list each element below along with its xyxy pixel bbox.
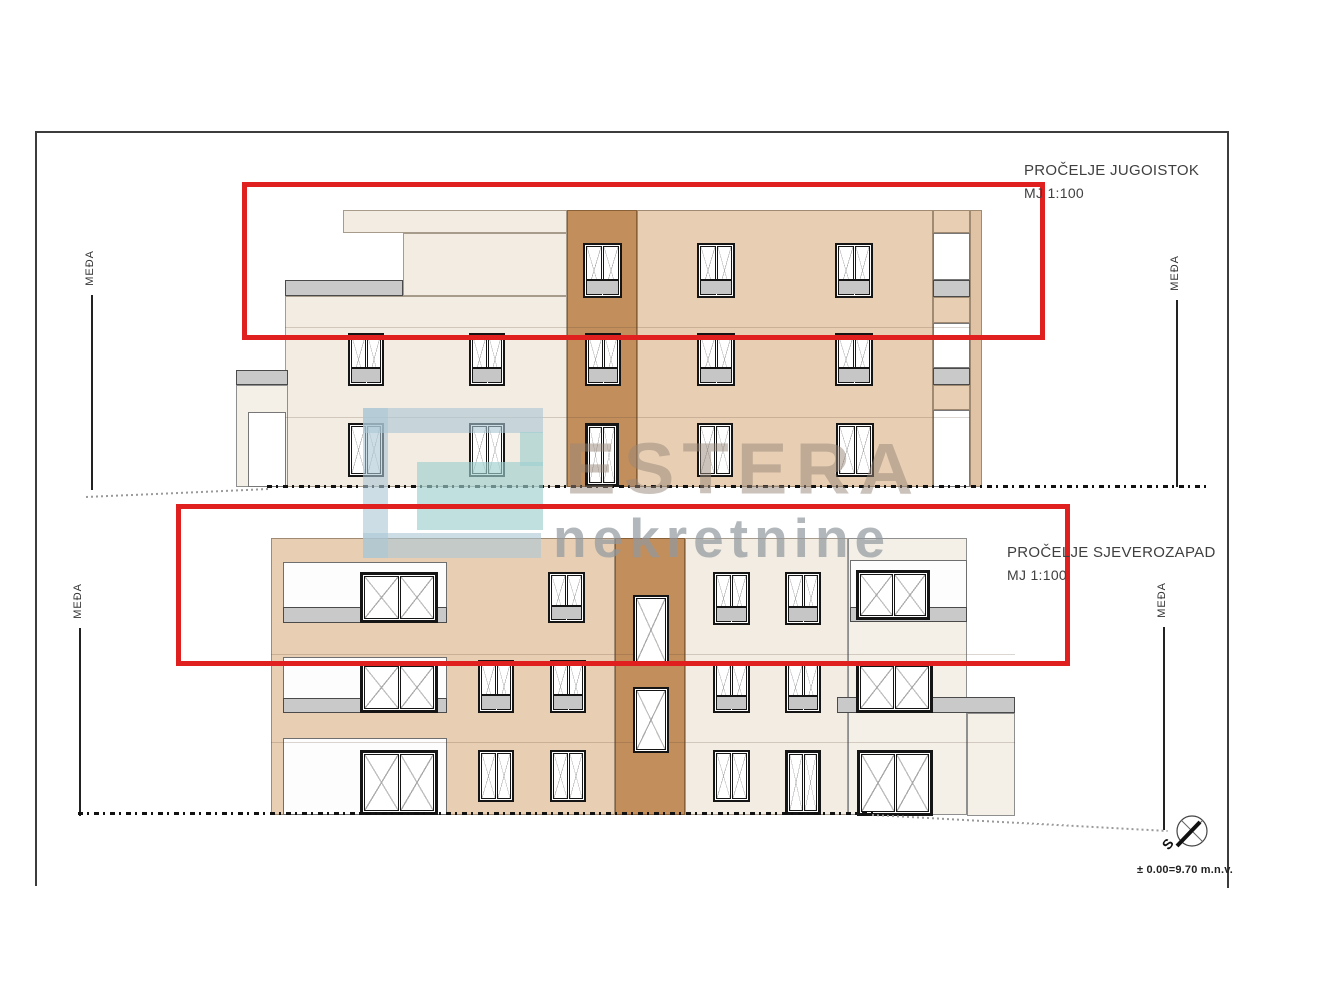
boundary-label: MEĐA: [72, 583, 84, 619]
boundary-label: MEĐA: [84, 250, 96, 286]
window-spandrel: [352, 367, 380, 382]
highlight-top-floor-southeast: [242, 182, 1045, 340]
window-spandrel: [473, 367, 501, 382]
elevation-title-southeast: PROČELJE JUGOISTOK MJ 1:100: [1024, 160, 1199, 204]
boundary-line: [1163, 627, 1165, 830]
window-spandrel: [589, 367, 617, 382]
door: [785, 750, 821, 815]
window-spandrel: [554, 694, 582, 709]
annex-opening: [248, 412, 286, 487]
boundary-label: MEĐA: [1169, 255, 1181, 291]
highlight-top-floor-northwest: [176, 504, 1070, 666]
window-pane: [364, 666, 399, 709]
balcony-side-wall: [967, 713, 1015, 816]
door: [857, 750, 933, 816]
window: [478, 660, 514, 713]
boundary-line: [91, 295, 93, 490]
scale-text: MJ 1:100: [1007, 565, 1216, 586]
window-pane: [716, 753, 731, 799]
window-spandrel: [839, 367, 869, 382]
window-pane: [400, 666, 435, 709]
watermark-logo-bar: [363, 408, 543, 433]
compass-icon: [1168, 809, 1214, 855]
terrain-line-southeast: [86, 488, 271, 498]
ground-line-northwest: [78, 812, 878, 815]
wall-panel: [933, 385, 970, 410]
watermark-logo-bar: [520, 432, 543, 466]
window: [835, 333, 873, 386]
scale-text: MJ 1:100: [1024, 183, 1199, 204]
window-pane: [364, 754, 399, 811]
window: [585, 333, 621, 386]
window-spandrel: [789, 695, 817, 709]
window-pane: [804, 754, 818, 811]
window-spandrel: [701, 367, 731, 382]
boundary-line: [79, 628, 81, 816]
window: [550, 660, 586, 713]
frame-top-line: [35, 131, 1228, 133]
boundary-line: [1176, 300, 1178, 487]
window-pane: [789, 754, 803, 811]
window-pane: [569, 753, 584, 799]
window: [348, 333, 384, 386]
boundary-label: MEĐA: [1156, 582, 1168, 618]
window-pane: [896, 754, 930, 812]
garage-slab: [236, 370, 288, 385]
window: [469, 333, 505, 386]
level-note: ± 0.00=9.70 m.n.v.: [1137, 864, 1233, 876]
loggia-opening: [933, 410, 970, 487]
watermark-brand: ESTERA: [565, 428, 921, 511]
door: [360, 750, 438, 815]
frame-right-line: [1227, 131, 1229, 888]
title-text: PROČELJE JUGOISTOK: [1024, 160, 1199, 183]
stair-window: [633, 687, 669, 753]
balcony-slab: [933, 368, 970, 385]
window-spandrel: [717, 695, 746, 709]
window-pane: [732, 753, 747, 799]
terrain-line-northwest: [872, 814, 1168, 832]
window-pane: [860, 666, 894, 709]
window-pane: [553, 753, 568, 799]
window-pane: [400, 754, 435, 811]
window-pane: [895, 666, 929, 709]
title-text: PROČELJE SJEVEROZAPAD: [1007, 542, 1216, 565]
window-pane: [861, 754, 895, 812]
elevation-title-northwest: PROČELJE SJEVEROZAPAD MJ 1:100: [1007, 542, 1216, 586]
window: [785, 662, 821, 713]
window-pane: [636, 690, 666, 750]
architectural-drawing: MEĐA MEĐA MEĐA MEĐA ESTERA nekretnine PR…: [0, 0, 1323, 992]
window: [550, 750, 586, 802]
window-pane: [481, 753, 496, 799]
window-pane: [497, 753, 512, 799]
window: [478, 750, 514, 802]
door: [856, 662, 933, 713]
door: [360, 662, 438, 713]
window: [713, 662, 750, 713]
window: [697, 333, 735, 386]
frame-left-line: [35, 131, 37, 886]
window: [713, 750, 750, 802]
window-spandrel: [482, 694, 510, 709]
